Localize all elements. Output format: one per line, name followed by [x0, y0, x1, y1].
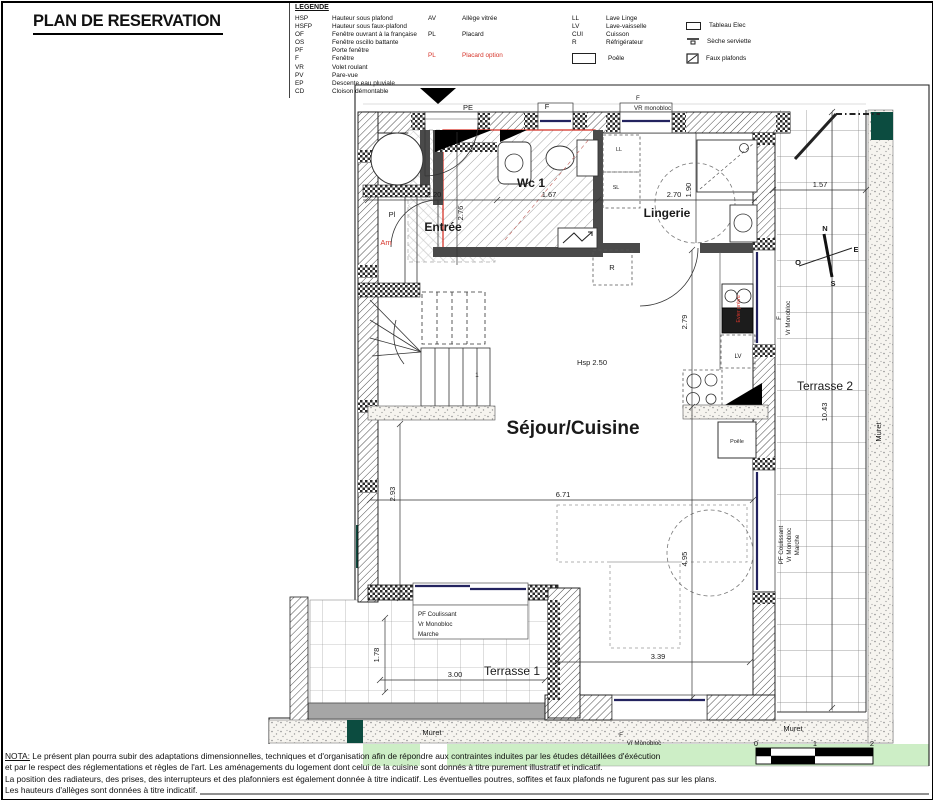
legend-label: Allège vitrée	[462, 15, 497, 23]
poele-icon	[572, 53, 596, 64]
cooktop	[683, 370, 722, 408]
legend-label: Fenêtre	[332, 55, 354, 63]
legend-abbr: LV	[572, 23, 606, 31]
furniture-outline	[557, 505, 747, 562]
legend-label: Hauteur sous faux-plafond	[332, 23, 407, 31]
label-lv: LV	[734, 353, 742, 360]
seche-serviette-symbol	[558, 228, 597, 248]
legend-abbr: HSFP	[295, 23, 332, 31]
legend-label: Placard	[462, 31, 484, 39]
wc-bowl	[546, 146, 574, 170]
legend-label-poele: Poêle	[608, 55, 624, 63]
faux-plafonds-icon	[686, 53, 699, 64]
label-ll: LL	[616, 147, 622, 153]
label-muret-bottom-right: Muret	[783, 724, 803, 733]
legend-label: Cuisson	[606, 31, 629, 39]
legend-column-2: AVAllège vitrée PLPlacard PLPlacard opti…	[428, 15, 503, 60]
label-vr-window-right: Vr Monobloc	[785, 301, 792, 336]
legend-abbr-placard-option: PL	[428, 52, 462, 60]
legend-label: Volet roulant	[332, 64, 368, 72]
nota-line-1: Le présent plan pourra subir des adaptat…	[32, 751, 660, 761]
legend-label: Réfrigérateur	[606, 39, 643, 47]
dim-157: 1.57	[813, 180, 828, 189]
label-pf-right-3: Marche	[794, 534, 801, 555]
wc-tank	[577, 140, 598, 176]
legend-column-4: Tableau Elec Sèche serviette Faux plafon…	[686, 22, 751, 71]
dishwasher-box	[721, 335, 755, 368]
compass-o: O	[795, 258, 801, 267]
seche-serviette-icon	[686, 37, 700, 46]
room-label-lingerie: Lingerie	[644, 206, 691, 220]
label-hsp: Hsp 2.50	[577, 358, 607, 367]
legend-label: Pare-vue	[332, 72, 358, 80]
nota-label: NOTA:	[5, 751, 30, 761]
label-pf-right-1: PF Coulissant	[778, 525, 785, 564]
legend-abbr: R	[572, 39, 606, 47]
legend-abbr: LL	[572, 15, 606, 23]
legend-abbr: F	[295, 55, 332, 63]
legend-label: Lave Linge	[606, 15, 637, 23]
page-title: PLAN DE RESERVATION	[33, 12, 223, 35]
dim-339: 3.39	[651, 652, 666, 661]
seche-linge-box	[603, 172, 640, 208]
legend-heading: LEGENDE	[295, 4, 329, 11]
dim-190: 1.90	[684, 183, 693, 198]
legend-abbr: PV	[295, 72, 332, 80]
dim-671: 6.71	[556, 490, 571, 499]
dim-279: 2.79	[680, 315, 689, 330]
label-pf-box-3: Marche	[418, 631, 439, 638]
dim-167: 1.67	[542, 190, 557, 199]
floor-plan-drawing: N E O S 0 1 2 PE F F VR monobloc Entrée …	[0, 0, 933, 800]
legend-label: Fenêtre ouvrant à la française	[332, 31, 417, 39]
compass-e: E	[853, 245, 858, 254]
room-label-sejour: Séjour/Cuisine	[506, 418, 639, 439]
staircase	[370, 292, 490, 406]
label-r: R	[609, 263, 615, 272]
legend-column-3: LLLave Linge LVLave-vaisselle CUICuisson…	[572, 15, 647, 64]
legend-abbr: EP	[295, 80, 332, 88]
muret-west-wall	[290, 597, 308, 722]
label-f-window-right: F	[776, 316, 783, 320]
compass-s: S	[830, 279, 835, 288]
dim-220: 2.20	[427, 190, 442, 199]
legend-abbr: CUI	[572, 31, 606, 39]
legend-label: Porte fenêtre	[332, 47, 369, 55]
legend-abbr: PL	[428, 31, 462, 39]
compass-n: N	[822, 224, 827, 233]
dim-495: 4.95	[680, 552, 689, 567]
nota-line-2: et par le respect des réglementations et…	[5, 762, 705, 773]
fixture-circle	[371, 133, 423, 185]
room-label-terrasse2: Terrasse 2	[797, 379, 853, 393]
nota-line-4: Les hauteurs d'allèges sont données à ti…	[5, 785, 705, 796]
dim-300: 3.00	[448, 670, 463, 679]
legend-label: Tableau Elec	[709, 22, 746, 30]
scale-1: 1	[813, 739, 817, 748]
label-stair-1: 1	[475, 372, 479, 379]
scale-2: 2	[870, 739, 874, 748]
legend-label-placard-option: Placard option	[462, 52, 503, 60]
legend-label: Sèche serviette	[707, 38, 751, 46]
label-muret-bottom-left: Muret	[422, 728, 442, 737]
furniture-outline	[610, 562, 680, 648]
legend-abbr: OF	[295, 31, 332, 39]
teal-block-bottom	[347, 720, 363, 743]
dim-1043: 10.43	[820, 403, 829, 422]
tableau-elec-icon	[686, 22, 701, 30]
label-pf-right-2: Vr Monobloc	[786, 528, 793, 563]
stair-base	[368, 406, 495, 420]
label-vr-monobloc-top: VR monobloc	[634, 105, 671, 112]
label-evier-prevu: Evier prévu	[736, 295, 742, 322]
label-pf-box-2: Vr Monobloc	[418, 621, 453, 628]
lingerie-door-arc	[640, 248, 698, 306]
room-label-wc1: Wc 1	[517, 176, 545, 190]
legend-abbr: VR	[295, 64, 332, 72]
legend-abbr: AV	[428, 15, 462, 23]
label-sl: SL	[613, 185, 620, 191]
legend-column-1: HSPHauteur sous plafond HSFPHauteur sous…	[295, 15, 417, 96]
label-pl: Pl	[389, 210, 396, 219]
teal-block-top-right	[871, 112, 893, 140]
floor-plan-page: N E O S 0 1 2 PE F F VR monobloc Entrée …	[0, 0, 933, 800]
room-label-entree: Entrée	[424, 220, 462, 234]
label-f-bottom: F	[619, 732, 623, 739]
label-am: Am	[380, 238, 391, 247]
dim-178: 1.78	[372, 648, 381, 663]
label-muret-right: Muret	[874, 421, 883, 441]
kitchen-counter	[683, 405, 768, 419]
dim-293: 2.93	[388, 487, 397, 502]
nota-block: NOTA: Le présent plan pourra subir des a…	[5, 751, 705, 796]
legend-abbr: CD	[295, 88, 332, 96]
window-bottom	[612, 695, 707, 720]
legend-label: Lave-vaisselle	[606, 23, 647, 31]
legend-label: Hauteur sous plafond	[332, 15, 393, 23]
legend-abbr: HSP	[295, 15, 332, 23]
dim-276: 2.76	[456, 206, 465, 221]
scale-0: 0	[754, 739, 758, 748]
legend-label: Descente eau pluviale	[332, 80, 395, 88]
room-label-terrasse1: Terrasse 1	[484, 664, 540, 678]
label-pf-box-1: PF Coulissant	[418, 611, 457, 618]
nota-line-3: La position des radiateurs, des prises, …	[5, 774, 705, 785]
label-f1: F	[545, 102, 550, 111]
legend: LEGENDE HSPHauteur sous plafond HSFPHaut…	[289, 2, 820, 98]
label-pe: PE	[463, 103, 473, 112]
legend-abbr: OS	[295, 39, 332, 47]
legend-label: Faux plafonds	[706, 55, 746, 63]
label-vr-bottom: Vr Monobloc	[627, 740, 662, 747]
label-poele: Poêle	[730, 439, 744, 445]
terrasse1-muret-gray	[308, 703, 548, 719]
legend-label: Fenêtre oscillo battante	[332, 39, 398, 47]
lave-linge-box	[603, 135, 640, 172]
legend-abbr: PF	[295, 47, 332, 55]
legend-label: Cloison démontable	[332, 88, 389, 96]
dim-270: 2.70	[667, 190, 682, 199]
